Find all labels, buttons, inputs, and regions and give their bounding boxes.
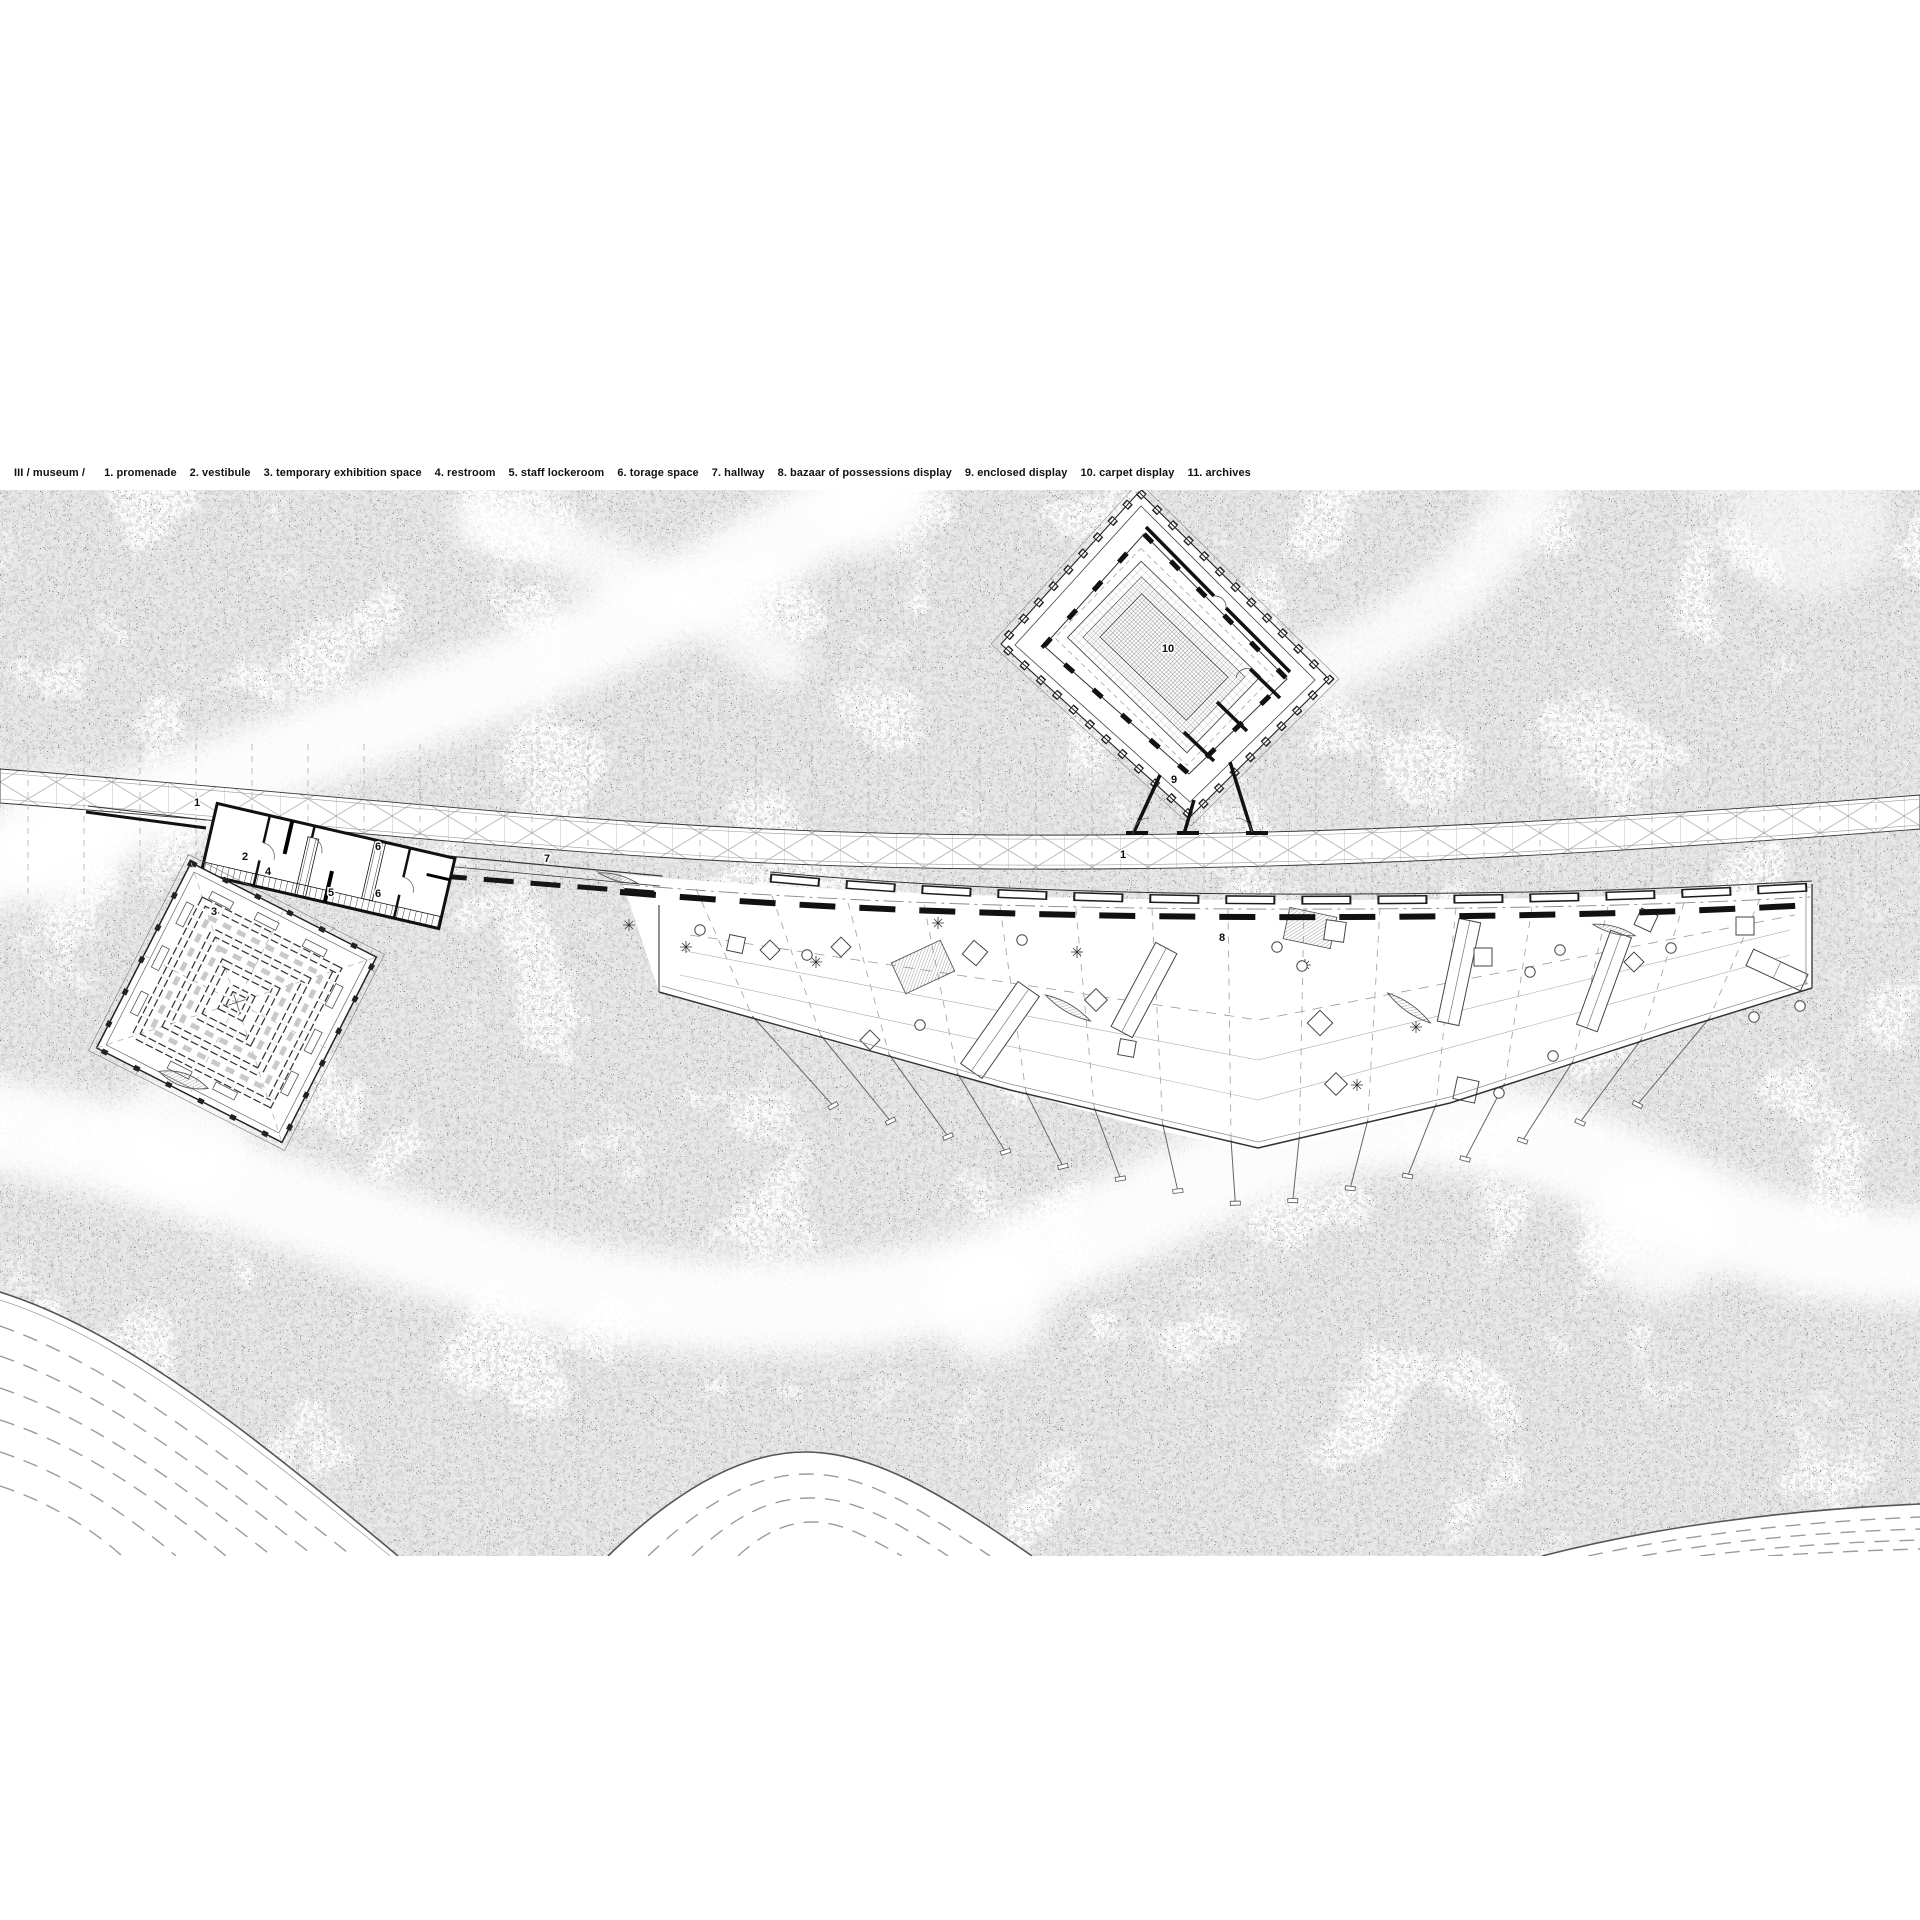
plan-label-4: 4: [265, 866, 272, 878]
plan-label-10: 10: [1162, 643, 1174, 655]
museum-plan-sheet: { "legend": { "prefix": "III / museum /"…: [0, 0, 1920, 1920]
plan-label-1: 1: [194, 797, 200, 809]
plan-label-3: 3: [211, 906, 217, 918]
plan-label-8: 8: [1219, 932, 1225, 944]
site-plan-drawing: 1123456678910: [0, 0, 1920, 1920]
plan-label-9: 9: [1171, 774, 1177, 786]
plan-label-2: 2: [242, 851, 248, 863]
plan-label-1: 1: [1120, 849, 1126, 861]
plan-label-7: 7: [544, 853, 550, 865]
plan-label-6: 6: [375, 841, 381, 853]
plan-label-5: 5: [328, 887, 334, 899]
plan-label-6: 6: [375, 888, 381, 900]
